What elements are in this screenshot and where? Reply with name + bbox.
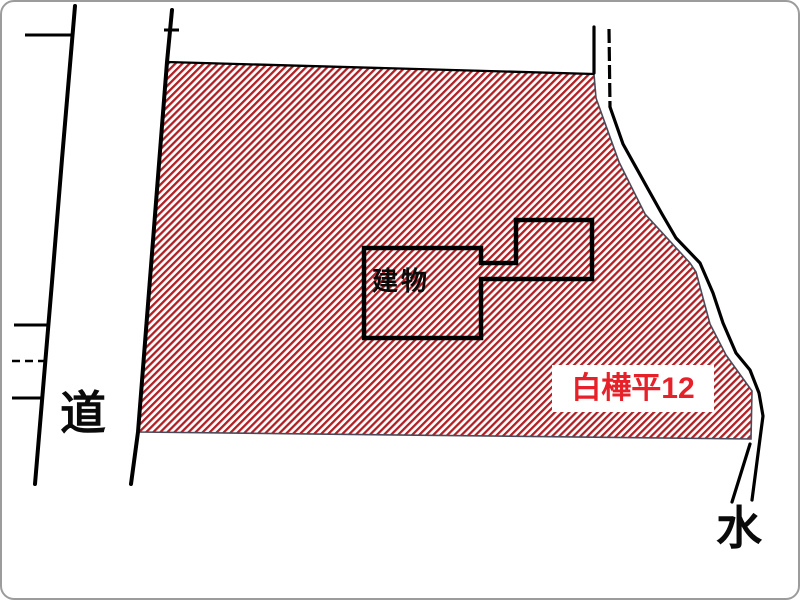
water-channel-lower-left: [732, 444, 750, 502]
building-label: 建物: [372, 268, 430, 294]
cadastral-map-canvas: 道 水 建物 白樺平12: [0, 0, 800, 600]
road-label: 道: [60, 390, 106, 436]
water-label: 水: [716, 505, 762, 551]
parcel-id-badge: 白樺平12: [552, 365, 714, 412]
water-channel-right-top: [609, 29, 610, 107]
cadastral-map-svg: [2, 2, 800, 600]
parcel-id-text: 白樺平12: [571, 374, 694, 404]
